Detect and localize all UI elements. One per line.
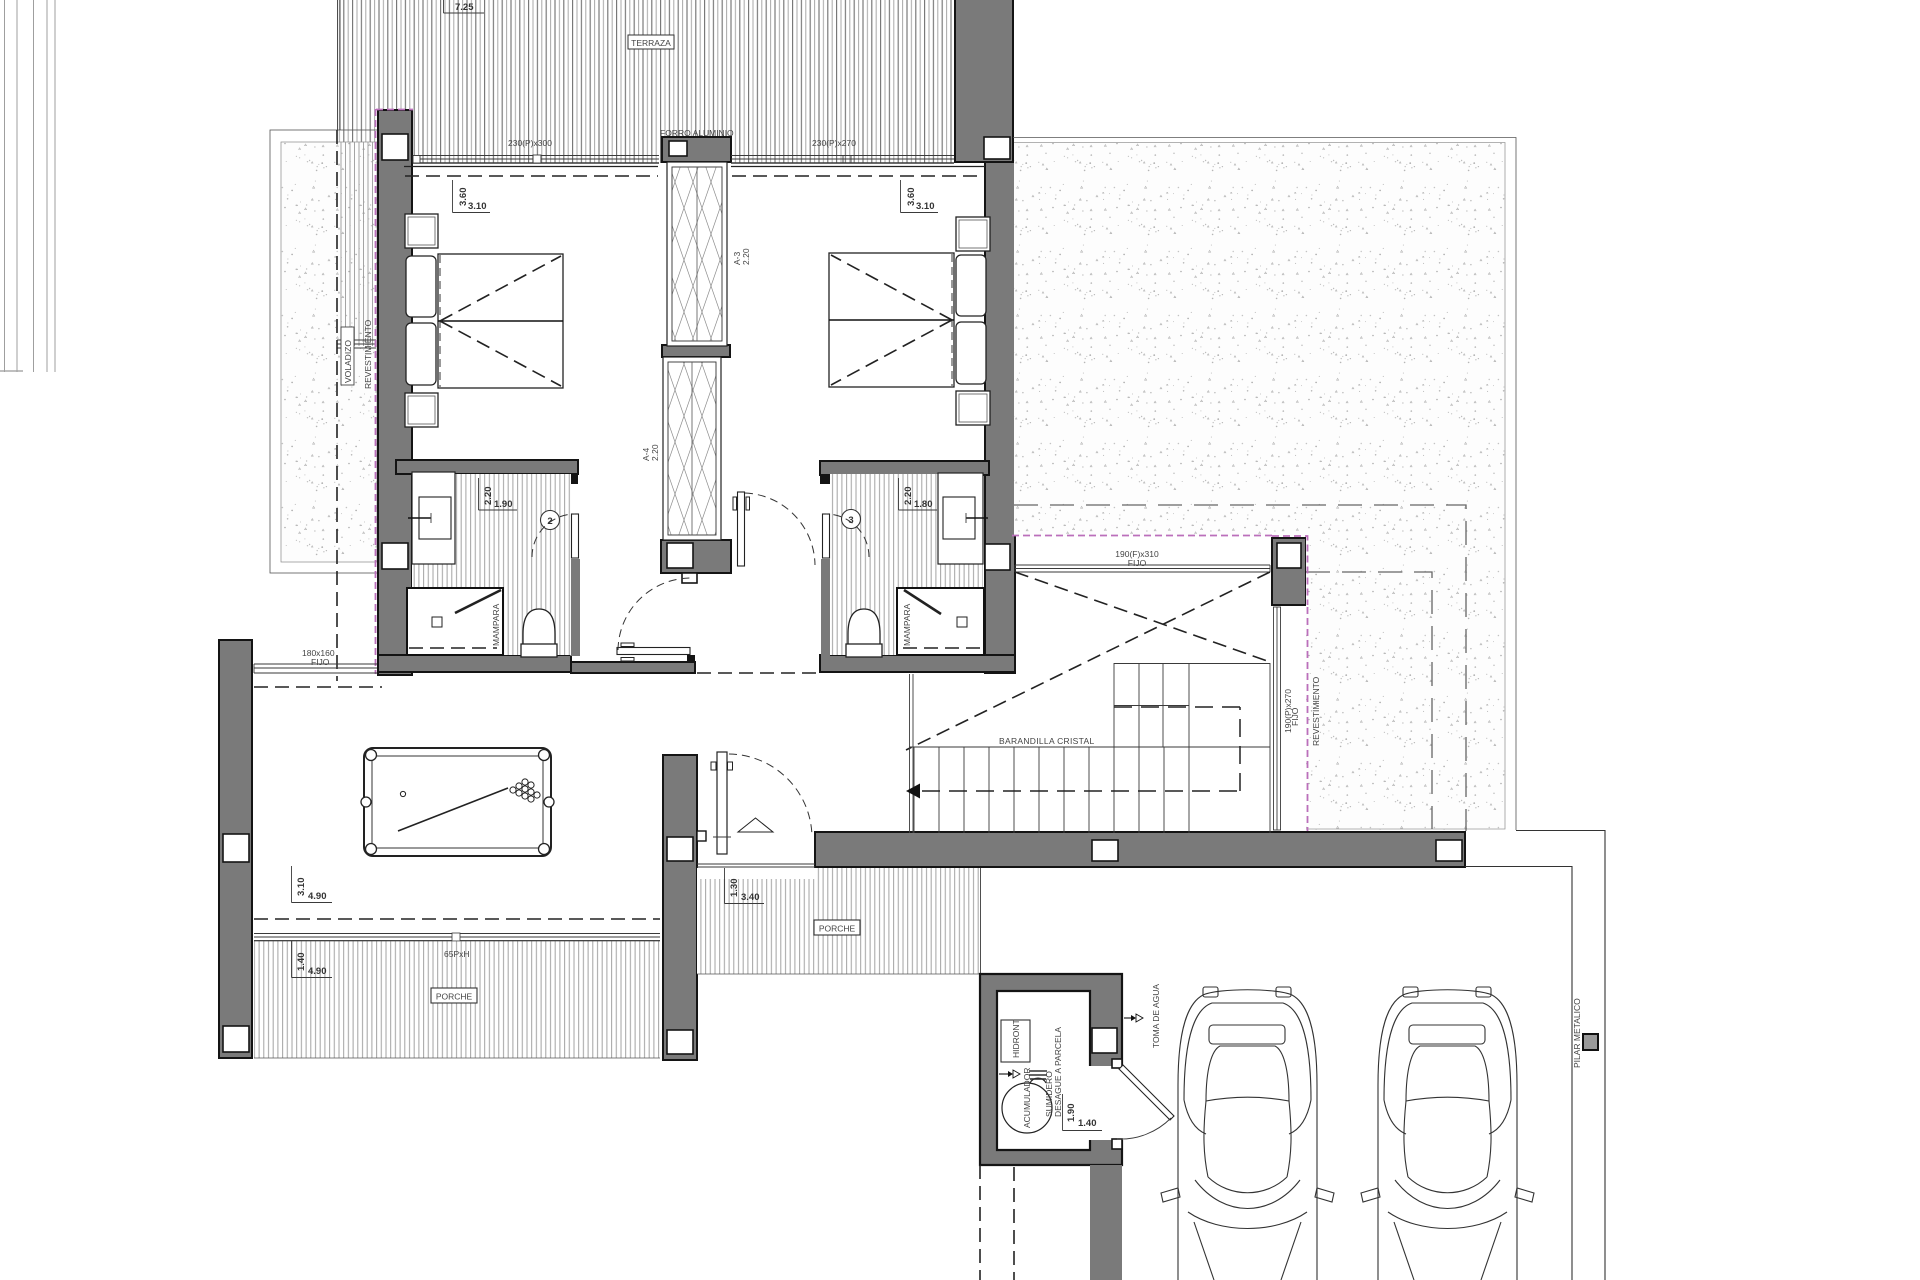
svg-text:TOMA DE AGUA: TOMA DE AGUA bbox=[1151, 984, 1161, 1048]
svg-text:3.10: 3.10 bbox=[468, 201, 487, 212]
svg-text:4.90: 4.90 bbox=[308, 966, 327, 977]
svg-text:230(P)x300: 230(P)x300 bbox=[508, 138, 552, 148]
svg-text:FIJO: FIJO bbox=[311, 657, 330, 667]
svg-text:3.10: 3.10 bbox=[916, 201, 935, 212]
svg-text:ACUMULADOR: ACUMULADOR bbox=[1022, 1068, 1032, 1128]
svg-text:HIDRONT: HIDRONT bbox=[1011, 1019, 1021, 1058]
svg-text:FIJO: FIJO bbox=[1290, 707, 1300, 726]
svg-text:7.25: 7.25 bbox=[455, 2, 474, 13]
svg-text:PILAR METALICO: PILAR METALICO bbox=[1572, 998, 1582, 1068]
svg-text:DESAGUE A PARCELA: DESAGUE A PARCELA bbox=[1053, 1027, 1063, 1117]
svg-text:REVESTIMIENTO: REVESTIMIENTO bbox=[1311, 676, 1321, 746]
svg-text:1.80: 1.80 bbox=[914, 499, 933, 510]
svg-text:BARANDILLA CRISTAL: BARANDILLA CRISTAL bbox=[999, 736, 1094, 746]
svg-text:4.90: 4.90 bbox=[308, 891, 327, 902]
svg-text:1.30: 1.30 bbox=[729, 879, 740, 898]
svg-text:3.10: 3.10 bbox=[296, 878, 307, 897]
svg-text:2.20: 2.20 bbox=[741, 248, 751, 265]
svg-text:FIJO: FIJO bbox=[1128, 558, 1147, 568]
svg-text:230(P)x270: 230(P)x270 bbox=[812, 138, 856, 148]
svg-text:PORCHE: PORCHE bbox=[436, 992, 473, 1002]
svg-text:2.20: 2.20 bbox=[903, 487, 914, 506]
svg-text:1.40: 1.40 bbox=[296, 953, 307, 972]
svg-text:1.40: 1.40 bbox=[1078, 1118, 1097, 1129]
svg-text:TERRAZA: TERRAZA bbox=[631, 38, 671, 48]
svg-text:1.90: 1.90 bbox=[1066, 1104, 1077, 1123]
svg-text:PORCHE: PORCHE bbox=[819, 924, 856, 934]
svg-text:2.20: 2.20 bbox=[483, 487, 494, 506]
svg-text:REVESTIMIENTO: REVESTIMIENTO bbox=[363, 319, 373, 389]
svg-text:3.40: 3.40 bbox=[741, 892, 760, 903]
svg-text:FORRO ALUMINIO: FORRO ALUMINIO bbox=[660, 128, 734, 138]
svg-text:2.20: 2.20 bbox=[650, 444, 660, 461]
svg-text:1.90: 1.90 bbox=[494, 499, 513, 510]
svg-text:VOLADIZO: VOLADIZO bbox=[343, 340, 353, 383]
svg-text:65PxH: 65PxH bbox=[444, 949, 470, 959]
svg-text:MAMPARA: MAMPARA bbox=[902, 603, 912, 646]
svg-text:MAMPARA: MAMPARA bbox=[491, 603, 501, 646]
